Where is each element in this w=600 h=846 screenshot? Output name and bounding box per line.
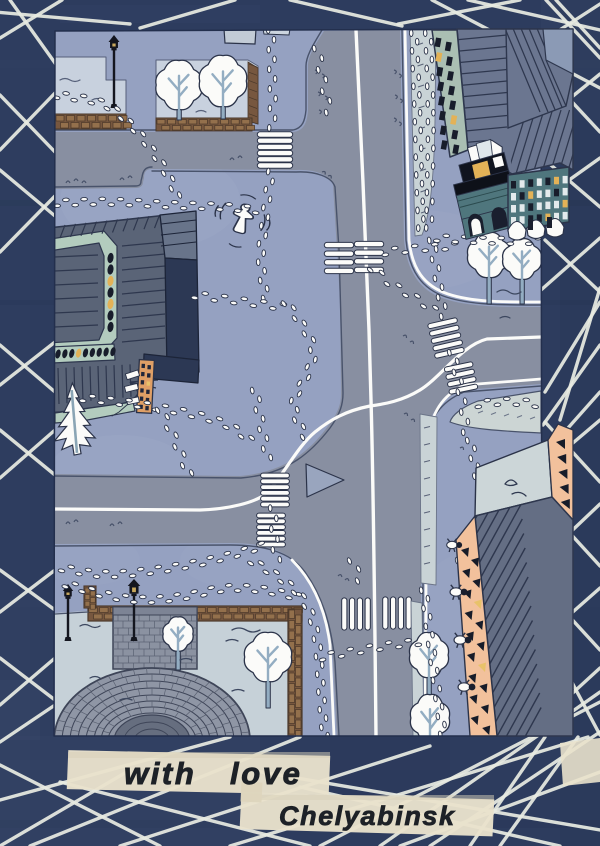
svg-text:with love: with love (124, 756, 302, 791)
svg-text:Chelyabinsk: Chelyabinsk (279, 801, 456, 831)
